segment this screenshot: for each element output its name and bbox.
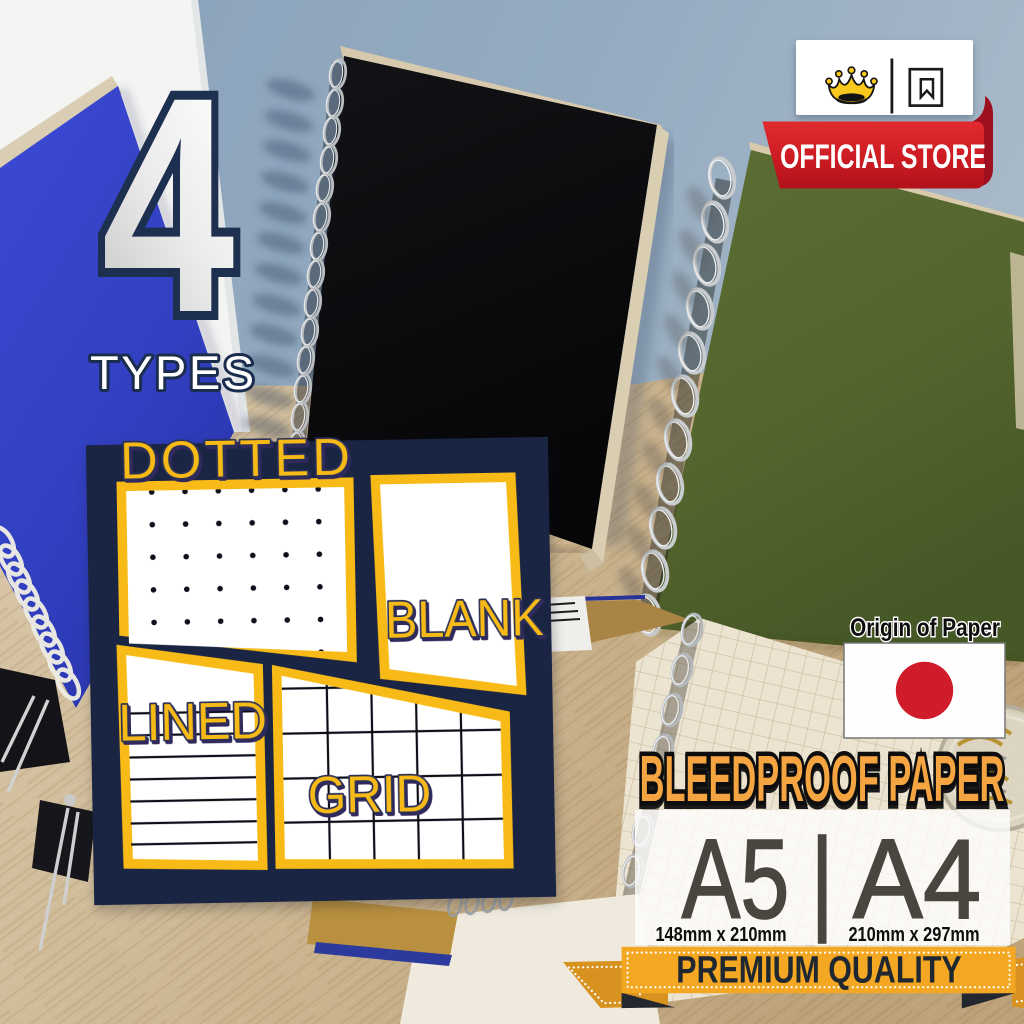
svg-text:LINED: LINED <box>118 691 268 752</box>
svg-text:BLANK: BLANK <box>385 588 545 649</box>
svg-text:DOTTED: DOTTED <box>120 428 354 490</box>
svg-text:PREMIUM QUALITY: PREMIUM QUALITY <box>676 949 961 991</box>
svg-text:GRID: GRID <box>307 764 432 825</box>
svg-text:148mm x 210mm: 148mm x 210mm <box>655 922 786 945</box>
svg-text:OFFICIAL STORE: OFFICIAL STORE <box>780 138 986 176</box>
svg-text:210mm x 297mm: 210mm x 297mm <box>848 922 979 945</box>
svg-text:TYPES: TYPES <box>90 346 257 399</box>
svg-text:Origin of Paper: Origin of Paper <box>850 613 1000 641</box>
svg-text:4: 4 <box>101 34 236 376</box>
svg-text:BLEEDPROOF PAPER: BLEEDPROOF PAPER <box>640 744 1005 816</box>
